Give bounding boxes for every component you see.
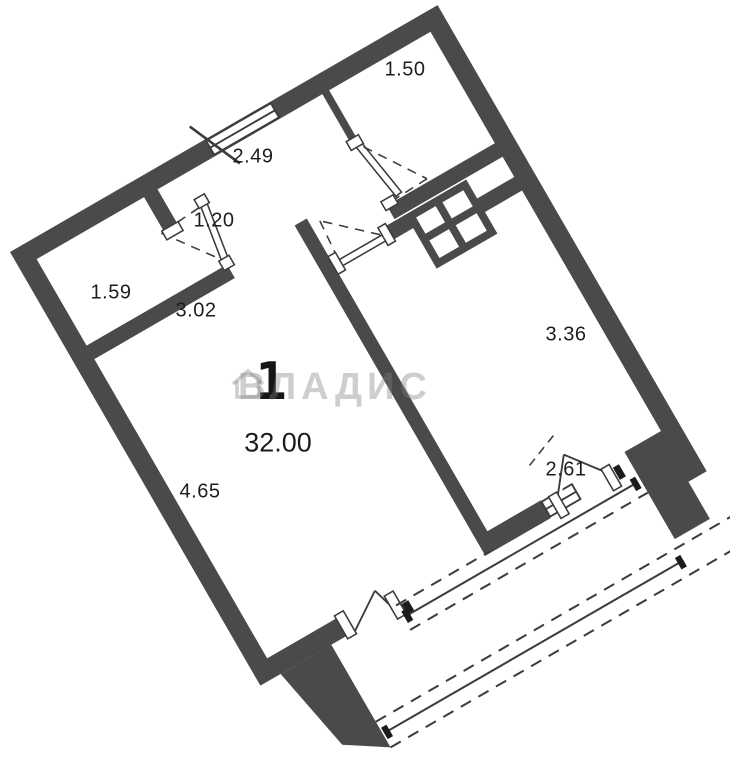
dim-living-length: 4.65: [180, 481, 221, 504]
loggia-rail-upper: [396, 551, 491, 606]
dim-hall-door-width: 1.20: [194, 210, 235, 233]
windows: [190, 51, 581, 576]
loggia-glazing: [408, 482, 638, 615]
dim-entry-hall-width: 2.49: [233, 146, 274, 169]
dim-bathroom-width: 1.50: [385, 59, 426, 82]
plan-rotated-group: [1, 0, 730, 768]
total-area-label: 32.00: [244, 428, 312, 459]
dim-corridor-length: 3.02: [176, 300, 217, 323]
dim-kitchen-length: 3.36: [546, 324, 587, 347]
room-count-label: 1: [255, 352, 286, 412]
floor-plan: 1.50 2.49 1.20 1.59 3.02 3.36 2.61 4.65 …: [0, 0, 730, 768]
floor-plan-drawing: [0, 0, 730, 768]
kitchen-door-leaf: [337, 234, 387, 267]
bathroom-door-leaf: [356, 143, 401, 197]
dim-balcony-opening: 2.61: [546, 459, 587, 482]
balcony-rail-inner: [376, 509, 730, 722]
walls: [10, 5, 730, 768]
entry-window-sill: [210, 110, 275, 147]
dim-wardrobe-width: 1.59: [91, 282, 132, 305]
